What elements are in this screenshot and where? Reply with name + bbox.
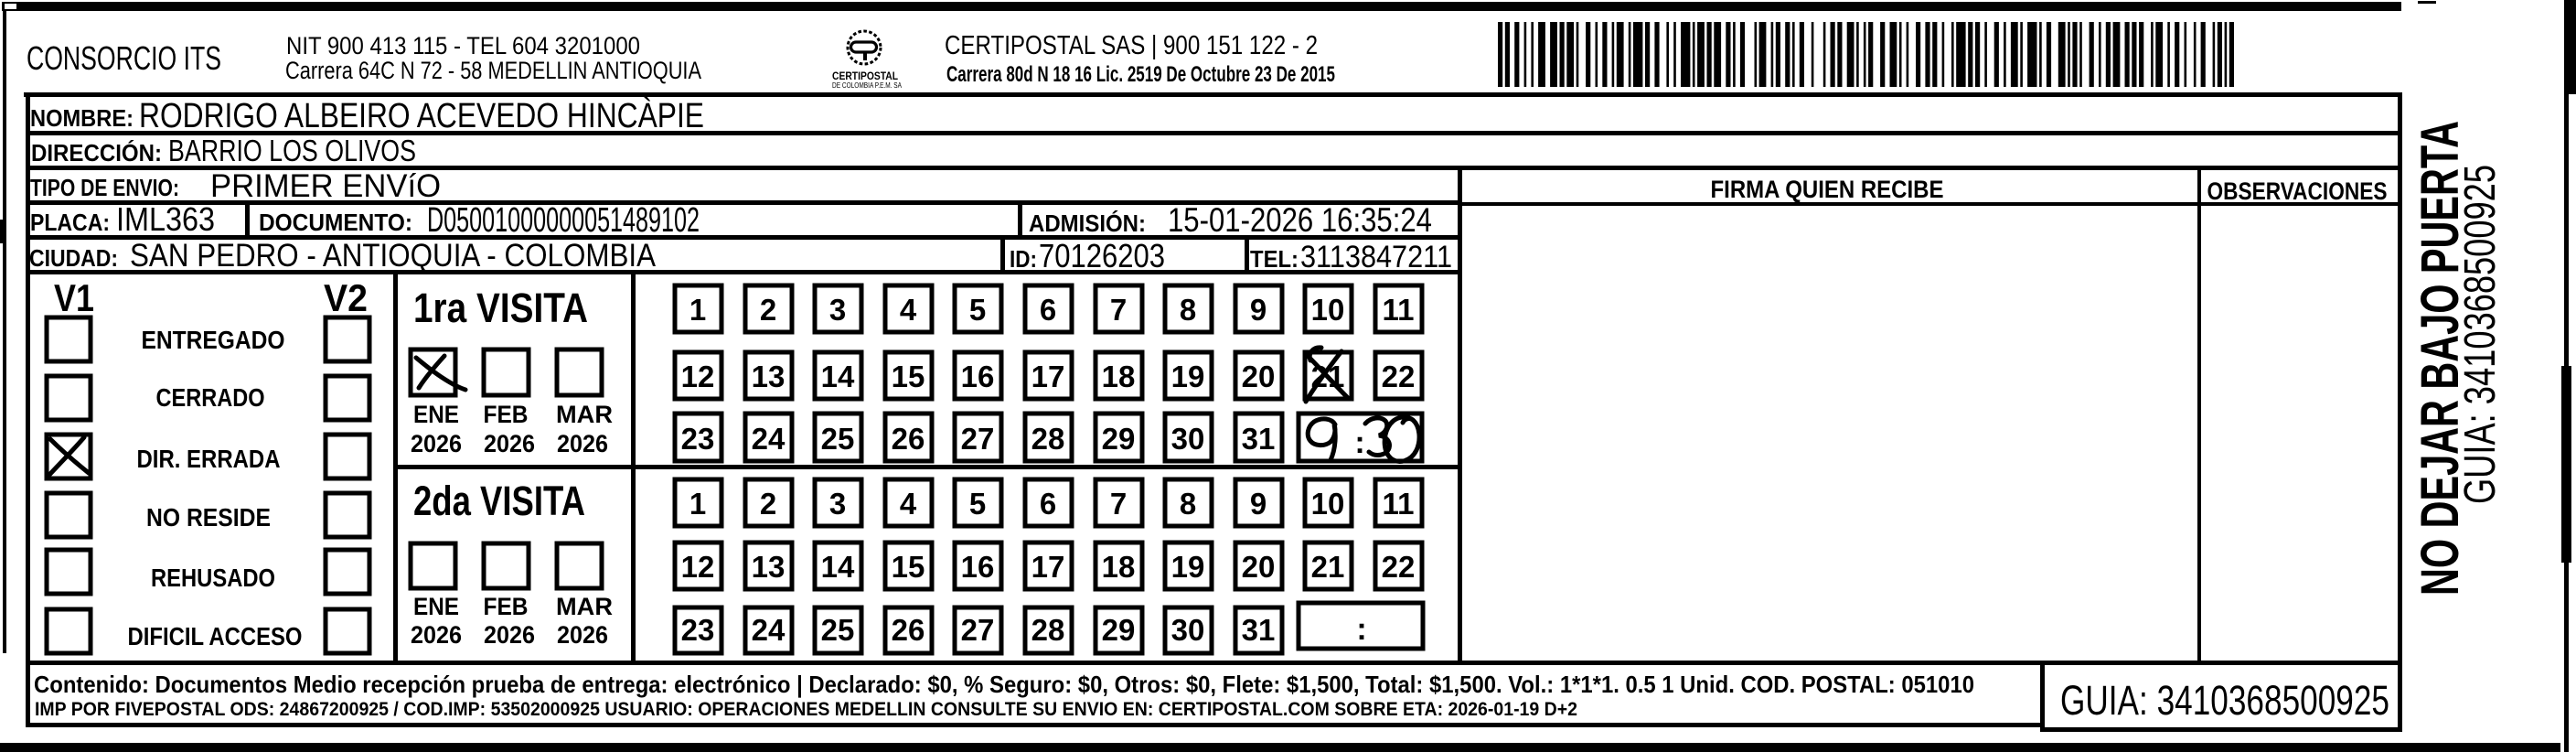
svg-text:IML363: IML363 — [116, 200, 215, 238]
svg-text::: : — [1354, 425, 1364, 460]
svg-text:20: 20 — [1242, 360, 1276, 393]
svg-text:12: 12 — [681, 550, 715, 584]
svg-text:NIT 900 413 115 - TEL 604 3201: NIT 900 413 115 - TEL 604 3201000 — [286, 32, 640, 59]
svg-text:FEB: FEB — [484, 401, 529, 428]
svg-text:ENTREGADO: ENTREGADO — [142, 326, 285, 354]
svg-text:70126203: 70126203 — [1039, 237, 1165, 274]
svg-text:D05001000000051489102: D05001000000051489102 — [427, 201, 700, 240]
svg-text:22: 22 — [1382, 550, 1416, 584]
svg-text:20: 20 — [1242, 550, 1276, 584]
svg-text:16: 16 — [961, 550, 995, 584]
svg-text:Carrera 80d N 18 16 Lic. 2519: Carrera 80d N 18 16 Lic. 2519 De Octubre… — [946, 62, 1335, 87]
svg-text:2026: 2026 — [557, 621, 608, 649]
svg-text:6: 6 — [1040, 487, 1056, 521]
svg-text:18: 18 — [1102, 360, 1136, 393]
svg-text:Carrera 64C N 72 - 58 MEDELLIN: Carrera 64C N 72 - 58 MEDELLIN ANTIOQUIA — [285, 57, 701, 84]
svg-text:22: 22 — [1382, 360, 1416, 393]
svg-text:31: 31 — [1242, 422, 1276, 456]
svg-text:2026: 2026 — [484, 621, 535, 649]
svg-text:8: 8 — [1180, 293, 1196, 327]
svg-text:25: 25 — [821, 613, 855, 647]
svg-text:PRIMER ENVíO: PRIMER ENVíO — [210, 168, 441, 204]
svg-text:5: 5 — [969, 487, 986, 521]
svg-text:27: 27 — [961, 422, 995, 456]
svg-text:2026: 2026 — [484, 430, 535, 457]
svg-text:CERRADO: CERRADO — [156, 383, 265, 412]
svg-text:DOCUMENTO:: DOCUMENTO: — [259, 209, 412, 236]
svg-text:NOMBRE:: NOMBRE: — [30, 104, 134, 132]
svg-text:26: 26 — [892, 613, 925, 647]
svg-text:REHUSADO: REHUSADO — [151, 564, 275, 592]
svg-text:GUIA: 3410368500925: GUIA: 3410368500925 — [2456, 165, 2505, 504]
svg-text:CERTIPOSTAL SAS | 900 151 122: CERTIPOSTAL SAS | 900 151 122 - 2 — [945, 31, 1318, 60]
svg-text:DIR. ERRADA: DIR. ERRADA — [137, 445, 281, 473]
svg-text:25: 25 — [821, 422, 855, 456]
svg-text:29: 29 — [1102, 613, 1136, 647]
svg-text:10: 10 — [1311, 293, 1345, 327]
svg-text:14: 14 — [821, 550, 855, 584]
svg-text::: : — [1356, 612, 1366, 647]
svg-text:24: 24 — [752, 422, 786, 456]
svg-text:7: 7 — [1110, 293, 1127, 327]
svg-text:FEB: FEB — [484, 593, 529, 620]
svg-text:FIRMA QUIEN RECIBE: FIRMA QUIEN RECIBE — [1711, 176, 1944, 203]
svg-text:TEL:: TEL: — [1250, 245, 1299, 273]
svg-text:13: 13 — [752, 550, 786, 584]
svg-text:V1: V1 — [54, 276, 94, 319]
svg-text:7: 7 — [1110, 487, 1127, 521]
svg-text:ID:: ID: — [1010, 245, 1037, 273]
svg-text:15: 15 — [892, 360, 925, 393]
svg-text:4: 4 — [900, 487, 917, 521]
svg-text:14: 14 — [821, 360, 855, 393]
svg-text:31: 31 — [1242, 613, 1276, 647]
svg-text:2da VISITA: 2da VISITA — [413, 478, 585, 524]
svg-text:ENE: ENE — [413, 401, 459, 428]
svg-text:BARRIO LOS OLIVOS: BARRIO LOS OLIVOS — [168, 134, 416, 167]
svg-text:17: 17 — [1031, 360, 1065, 393]
svg-text:ENE: ENE — [413, 593, 459, 620]
svg-text:21: 21 — [1311, 550, 1345, 584]
svg-text:DIFICIL ACCESO: DIFICIL ACCESO — [128, 622, 303, 650]
svg-text:13: 13 — [752, 360, 786, 393]
svg-text:PLACA:: PLACA: — [30, 209, 110, 236]
svg-text:DIRECCIÓN:: DIRECCIÓN: — [31, 139, 162, 167]
svg-text:Contenido: Documentos Medio re: Contenido: Documentos Medio recepción pr… — [34, 671, 1974, 698]
svg-text:MAR: MAR — [556, 593, 613, 620]
svg-text:MAR: MAR — [556, 401, 613, 428]
svg-text:26: 26 — [892, 422, 925, 456]
svg-text:V2: V2 — [324, 276, 368, 319]
svg-text:9: 9 — [1250, 487, 1267, 521]
svg-text:30: 30 — [1171, 613, 1205, 647]
svg-text:RODRIGO ALBEIRO ACEVEDO HINCÀP: RODRIGO ALBEIRO ACEVEDO HINCÀPIE — [139, 96, 704, 135]
svg-text:28: 28 — [1031, 422, 1065, 456]
svg-text:30: 30 — [1171, 422, 1205, 456]
svg-text:11: 11 — [1383, 487, 1415, 521]
svg-text:1: 1 — [689, 293, 706, 327]
svg-text:GUIA: 3410368500925: GUIA: 3410368500925 — [2060, 677, 2389, 724]
svg-text:4: 4 — [900, 293, 917, 327]
svg-text:19: 19 — [1171, 360, 1205, 393]
svg-text:12: 12 — [681, 360, 715, 393]
svg-text:29: 29 — [1102, 422, 1136, 456]
svg-text:1ra VISITA: 1ra VISITA — [413, 285, 588, 331]
svg-text:SAN PEDRO - ANTIOQUIA - COLOMB: SAN PEDRO - ANTIOQUIA - COLOMBIA — [130, 238, 657, 274]
svg-text:3: 3 — [829, 293, 846, 327]
svg-text:18: 18 — [1102, 550, 1136, 584]
svg-text:8: 8 — [1180, 487, 1196, 521]
svg-text:5: 5 — [969, 293, 986, 327]
svg-text:3113847211: 3113847211 — [1300, 240, 1452, 274]
svg-text:CIUDAD:: CIUDAD: — [29, 244, 118, 272]
svg-text:TIPO DE ENVIO:: TIPO DE ENVIO: — [30, 174, 179, 201]
svg-text:OBSERVACIONES: OBSERVACIONES — [2207, 177, 2388, 205]
svg-text:11: 11 — [1383, 293, 1415, 327]
svg-text:CONSORCIO ITS: CONSORCIO ITS — [27, 39, 221, 77]
svg-text:1: 1 — [689, 487, 706, 521]
svg-text:15: 15 — [892, 550, 925, 584]
svg-text:23: 23 — [681, 613, 715, 647]
svg-text:6: 6 — [1040, 293, 1056, 327]
svg-text:2026: 2026 — [411, 430, 462, 457]
svg-text:15-01-2026 16:35:24: 15-01-2026 16:35:24 — [1168, 201, 1432, 239]
svg-text:CERTIPOSTAL: CERTIPOSTAL — [832, 70, 898, 82]
svg-text:IMP POR FIVEPOSTAL ODS: 248672: IMP POR FIVEPOSTAL ODS: 24867200925 / CO… — [35, 699, 1577, 720]
svg-text:ADMISIÓN:: ADMISIÓN: — [1029, 209, 1146, 237]
svg-text:19: 19 — [1171, 550, 1205, 584]
svg-text:27: 27 — [961, 613, 995, 647]
svg-text:2026: 2026 — [411, 621, 462, 649]
svg-text:28: 28 — [1031, 613, 1065, 647]
svg-text:2026: 2026 — [557, 430, 608, 457]
svg-text:3: 3 — [829, 487, 846, 521]
svg-text:16: 16 — [961, 360, 995, 393]
svg-text:24: 24 — [752, 613, 786, 647]
svg-text:2: 2 — [760, 487, 776, 521]
svg-text:2: 2 — [760, 293, 776, 327]
svg-text:23: 23 — [681, 422, 715, 456]
svg-text:9: 9 — [1250, 293, 1267, 327]
svg-text:17: 17 — [1031, 550, 1065, 584]
svg-text:10: 10 — [1311, 487, 1345, 521]
svg-text:DE COLOMBIA P.E.M. SA: DE COLOMBIA P.E.M. SA — [832, 81, 903, 90]
svg-text:NO RESIDE: NO RESIDE — [146, 503, 271, 532]
